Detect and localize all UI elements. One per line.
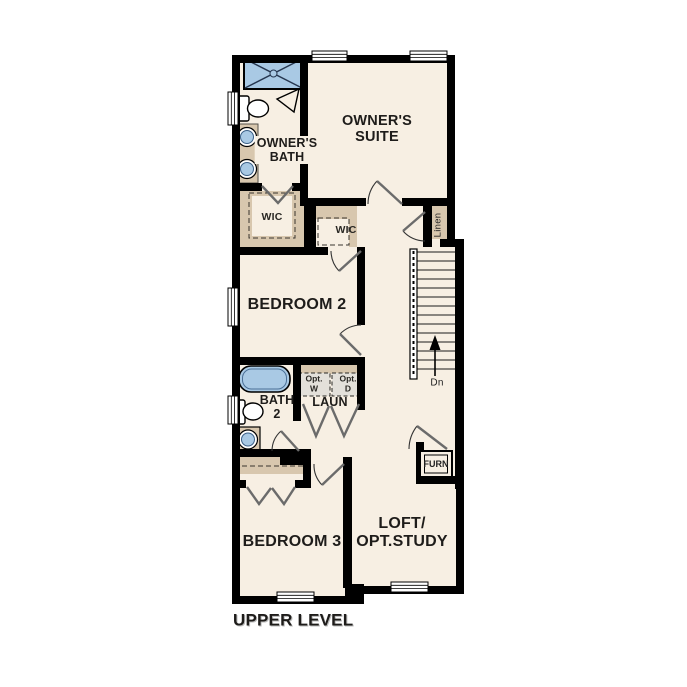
window-suite-2 bbox=[410, 51, 447, 61]
label-laundry: LAUN bbox=[312, 395, 348, 409]
label-wic-small: WIC bbox=[335, 225, 356, 237]
label-loft: LOFT/ OPT.STUDY bbox=[356, 515, 448, 551]
stair-railing bbox=[410, 249, 417, 379]
label-bath2: BATH 2 bbox=[260, 393, 295, 421]
plan-title: UPPER LEVEL bbox=[233, 610, 353, 629]
label-bedroom2: BEDROOM 2 bbox=[248, 296, 347, 314]
window-bedroom2 bbox=[228, 288, 238, 326]
label-wic-large: WIC bbox=[261, 212, 282, 224]
label-opt-dryer: Opt. D bbox=[340, 374, 357, 393]
bathtub bbox=[239, 366, 290, 392]
window-suite-1 bbox=[312, 51, 347, 61]
label-linen: Linen bbox=[434, 213, 445, 238]
label-stairs-down: Dn bbox=[430, 377, 443, 388]
window-loft bbox=[391, 582, 428, 592]
label-owners-bath: OWNER'S BATH bbox=[255, 136, 320, 164]
floor-plan-drawing bbox=[0, 0, 687, 687]
window-bedroom3 bbox=[277, 592, 314, 602]
window-bath2 bbox=[228, 396, 238, 424]
label-owners-suite: OWNER'S SUITE bbox=[342, 113, 412, 145]
window-owners-bath bbox=[228, 92, 238, 125]
label-bedroom3: BEDROOM 3 bbox=[243, 533, 342, 551]
label-furnace: FURN bbox=[424, 459, 449, 469]
label-opt-washer: Opt. W bbox=[306, 374, 323, 393]
floor-plan: OWNER'S SUITE OWNER'S BATH WIC WIC Linen… bbox=[0, 0, 687, 687]
